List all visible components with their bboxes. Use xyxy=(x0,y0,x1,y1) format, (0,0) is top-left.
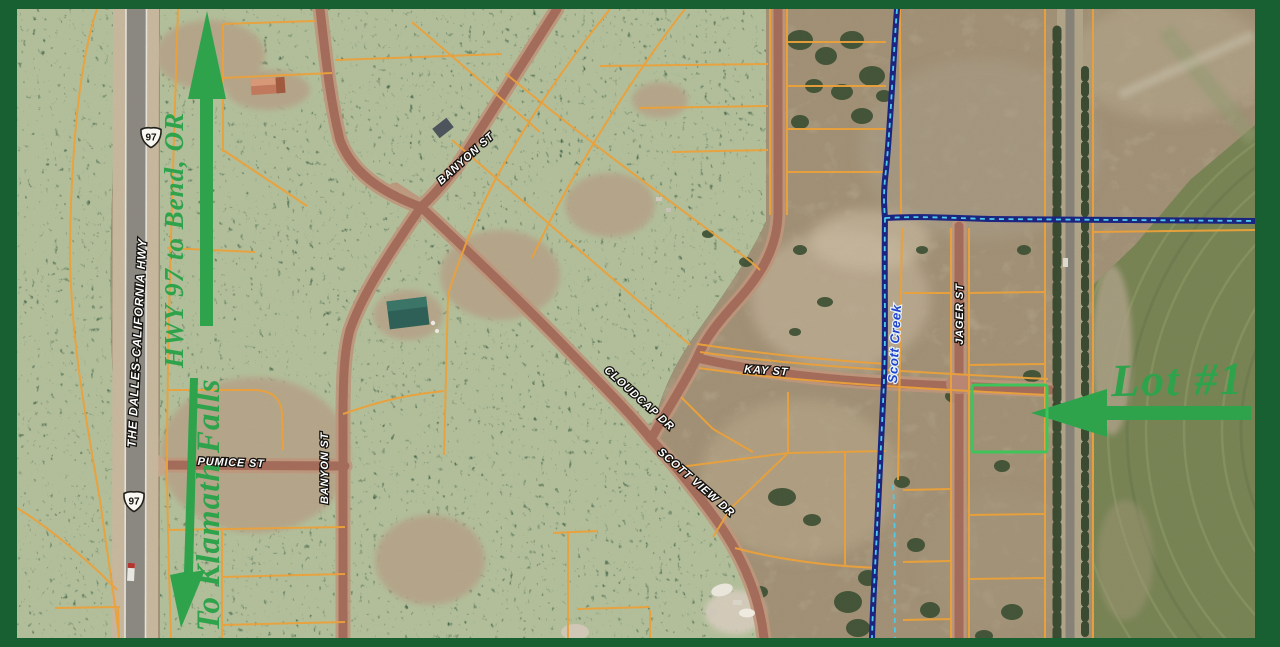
shield-route-number: 97 xyxy=(145,133,157,144)
satellite-map-image: THE DALLES-CALIFORNIA HWY BANYON ST BANY… xyxy=(0,0,1280,647)
bordered-map-frame: THE DALLES-CALIFORNIA HWY BANYON ST BANY… xyxy=(0,0,1280,647)
shield-route-number: 97 xyxy=(128,497,140,508)
south-arrow-label: To Klamath Falls xyxy=(191,378,227,631)
street-label-banyon-vertical: BANYON ST xyxy=(319,432,331,504)
north-arrow-label: HWY 97 to Bend, OR xyxy=(159,112,189,369)
street-label-jager: JAGER ST xyxy=(954,283,966,345)
lot-arrow-label: Lot #1 xyxy=(1110,353,1245,406)
